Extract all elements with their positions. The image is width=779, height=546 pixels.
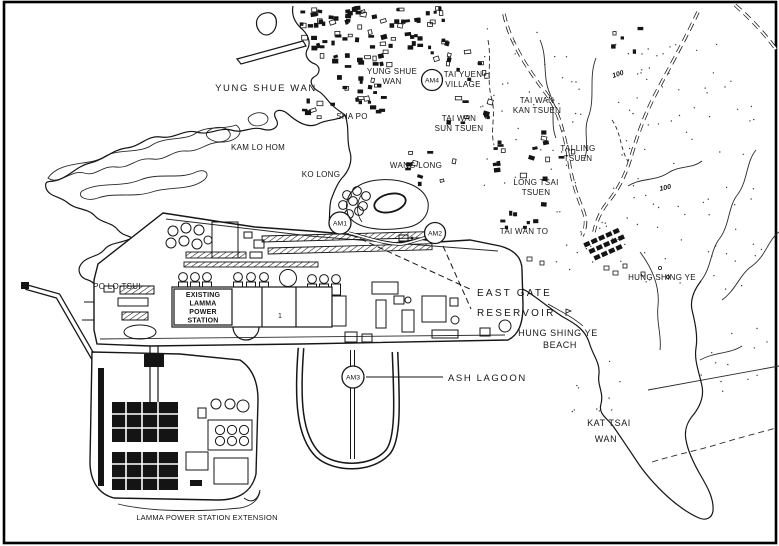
building: [427, 151, 433, 154]
building: [373, 56, 376, 61]
label-tai-yuen-village-2: VILLAGE: [445, 80, 480, 89]
terrain-dot: [722, 391, 723, 392]
terrain-dot: [575, 113, 576, 114]
terrain-dot: [605, 222, 606, 223]
terrain-dot: [566, 56, 567, 57]
station-am4-label: AM4: [425, 78, 439, 85]
building: [300, 11, 305, 14]
building: [331, 41, 334, 46]
terrain-dot: [558, 103, 559, 104]
terrain-dot: [580, 114, 581, 115]
building: [333, 54, 338, 58]
terrain-dot: [719, 151, 720, 152]
terrain-dot: [609, 361, 610, 362]
terrain-dot: [536, 32, 537, 33]
building: [381, 96, 387, 99]
terrain-dot: [675, 44, 676, 45]
building: [380, 42, 386, 46]
terrain-dot: [637, 73, 638, 74]
terrain-dot: [572, 411, 573, 412]
station-am3-label: AM3: [346, 375, 360, 382]
label-hung-shing-ye-beach-1: HUNG SHING YE: [518, 328, 598, 338]
terrain-dot: [486, 158, 487, 159]
building: [390, 23, 395, 28]
label-kam-lo-hom: KAM LO HOM: [231, 143, 285, 152]
label-hung-shing-ye-beach-2: BEACH: [543, 340, 577, 350]
label-existing-station-4: STATION: [187, 318, 218, 325]
building: [328, 15, 333, 19]
building: [621, 36, 624, 39]
building: [389, 44, 393, 48]
label-yung-shue-wan-bay: YUNG SHUE WAN: [215, 83, 317, 94]
terrain-dot: [711, 352, 712, 353]
terrain-dot: [513, 41, 514, 42]
terrain-dot: [501, 110, 502, 111]
station-am4: AM4: [422, 70, 443, 91]
building: [354, 6, 360, 11]
terrain-dot: [747, 379, 748, 380]
building: [368, 101, 371, 104]
terrain-dot: [544, 64, 545, 65]
label-reservoir: RESERVOIR: [477, 308, 556, 319]
terrain-dot: [709, 214, 710, 215]
terrain-dot: [691, 139, 692, 140]
building: [532, 146, 538, 150]
label-tai-wan-sun-tsuen-2: SUN TSUEN: [435, 124, 484, 133]
station-am3: AM3: [342, 366, 364, 388]
building: [358, 25, 362, 29]
building: [408, 45, 414, 49]
building: [417, 174, 423, 179]
terrain-dot: [753, 119, 754, 120]
terrain-dot: [737, 109, 738, 110]
label-kat-tsai-wan-2: WAN: [595, 434, 617, 444]
terrain-dot: [648, 124, 649, 125]
terrain-dot: [656, 55, 657, 56]
terrain-dot: [753, 244, 754, 245]
terrain-dot: [515, 139, 516, 140]
building: [613, 32, 616, 35]
building: [452, 159, 456, 164]
map-canvas: AM1 AM2 AM3 AM4 YUNG SHUE WAN YUNG SHUE …: [0, 0, 779, 546]
building: [343, 86, 348, 89]
terrain-dot: [755, 255, 756, 256]
building: [541, 130, 546, 134]
building: [317, 9, 322, 13]
terrain-dot: [754, 347, 755, 348]
building: [438, 7, 441, 11]
building: [377, 84, 381, 88]
terrain-dot: [613, 188, 614, 189]
terrain-dot: [715, 362, 716, 363]
building: [311, 36, 317, 40]
building: [368, 85, 373, 90]
building: [372, 14, 378, 19]
building: [447, 53, 451, 57]
ash-lagoon: [299, 348, 396, 466]
building: [633, 49, 636, 53]
terrain-dot: [624, 244, 625, 245]
label-contour-100-a: 100: [611, 70, 624, 80]
terrain-dot: [705, 87, 706, 88]
building: [414, 34, 418, 37]
building: [383, 50, 388, 53]
terrain-dot: [678, 206, 679, 207]
building: [368, 35, 374, 38]
building: [315, 13, 318, 16]
terrain-dot: [552, 150, 553, 151]
terrain-dot: [562, 130, 563, 131]
terrain-dot: [766, 341, 767, 342]
station-am2-label: AM2: [428, 231, 442, 238]
building: [487, 99, 493, 105]
terrain-dot: [580, 231, 581, 232]
terrain-dot: [658, 207, 659, 208]
building: [434, 11, 437, 14]
building: [464, 50, 471, 54]
terrain-dot: [673, 163, 674, 164]
building: [638, 27, 644, 30]
terrain-dot: [556, 261, 557, 262]
terrain-dot: [617, 239, 618, 240]
building: [312, 8, 317, 12]
building: [373, 91, 377, 94]
building: [442, 39, 446, 43]
terrain-dot: [750, 198, 751, 199]
terrain-dot: [735, 229, 736, 230]
terrain-dot: [658, 123, 659, 124]
label-existing-station-3: POWER: [189, 309, 216, 316]
label-wang-long: WANG LONG: [390, 161, 442, 170]
terrain-dot: [709, 116, 710, 117]
terrain-dot: [569, 269, 570, 270]
terrain-dot: [679, 282, 680, 283]
building: [348, 34, 352, 37]
terrain-dot: [662, 86, 663, 87]
terrain-dot: [637, 178, 638, 179]
terrain-dot: [556, 211, 557, 212]
building: [405, 19, 410, 23]
terrain-stipple: [480, 28, 768, 412]
building: [494, 168, 501, 173]
building: [501, 149, 505, 153]
terrain-dot: [726, 253, 727, 254]
terrain-dot: [648, 48, 649, 49]
terrain-dot: [753, 188, 754, 189]
building: [447, 57, 452, 62]
building: [364, 96, 370, 101]
building: [409, 151, 413, 154]
terrain-dot: [641, 53, 642, 54]
building: [417, 44, 423, 47]
terrain-dot: [727, 364, 728, 365]
terrain-dot: [724, 86, 725, 87]
building: [302, 35, 308, 40]
station-am2: AM2: [425, 223, 446, 244]
terrain-dot: [645, 195, 646, 196]
label-tai-yuen-village-1: TAI YUEN: [444, 70, 483, 79]
terrain-dot: [734, 204, 735, 205]
label-tai-ling-tsuen-1: TAI LING: [560, 144, 595, 153]
terrain-dot: [529, 91, 530, 92]
label-sha-po: SHA PO: [336, 112, 368, 121]
building: [307, 99, 310, 104]
label-ko-long: KO LONG: [302, 170, 341, 179]
terrain-dot: [620, 261, 621, 262]
power-station-extension: [90, 346, 260, 511]
terrain-dot: [518, 128, 519, 129]
building: [418, 182, 422, 186]
building: [611, 44, 616, 48]
building: [433, 56, 439, 62]
building: [358, 90, 364, 94]
terrain-dot: [618, 102, 619, 103]
terrain-dot: [716, 44, 717, 45]
building: [446, 62, 449, 66]
terrain-dot: [743, 154, 744, 155]
label-unit-1: 1: [278, 313, 282, 320]
terrain-dot: [715, 245, 716, 246]
terrain-dot: [504, 182, 505, 183]
terrain-dot: [577, 252, 578, 253]
building: [543, 140, 549, 145]
building: [498, 141, 502, 145]
building: [317, 101, 323, 106]
terrain-dot: [713, 275, 714, 276]
terrain-dot: [726, 187, 727, 188]
station-am1: AM1: [329, 212, 351, 234]
building: [440, 179, 444, 182]
terrain-dot: [596, 408, 597, 409]
label-ash-lagoon: ASH LAGOON: [448, 373, 527, 384]
building: [500, 220, 505, 223]
contour-labels: 100 100: [611, 70, 671, 193]
terrain-dot: [592, 261, 593, 262]
building: [322, 22, 325, 26]
building: [355, 37, 359, 42]
terrain-dot: [612, 238, 613, 239]
building: [541, 202, 547, 207]
terrain-dot: [681, 239, 682, 240]
terrain-dot: [514, 53, 515, 54]
terrain-dot: [487, 28, 488, 29]
terrain-dot: [706, 92, 707, 93]
building: [417, 18, 421, 23]
building: [527, 221, 530, 224]
terrain-dot: [615, 44, 616, 45]
terrain-dot: [694, 107, 695, 108]
label-tai-wan-kan-tsuen-1: TAI WAN: [520, 96, 555, 105]
building: [365, 56, 371, 59]
building: [380, 18, 386, 23]
building: [410, 35, 414, 39]
terrain-dot: [679, 115, 680, 116]
label-east-gate: EAST GATE: [477, 288, 552, 299]
building: [370, 45, 375, 48]
terrain-dot: [611, 409, 612, 410]
building: [509, 211, 512, 216]
terrain-dot: [649, 67, 650, 68]
building: [320, 45, 325, 48]
terrain-dot: [637, 97, 638, 98]
label-po-lo-tsui: PO LO TSUI: [93, 282, 141, 291]
building: [513, 212, 517, 216]
terrain-dot: [484, 56, 485, 57]
terrain-dot: [646, 79, 647, 80]
building: [391, 38, 395, 41]
terrain-dot: [572, 121, 573, 122]
terrain-dot: [484, 185, 485, 186]
label-existing-station-1: EXISTING: [186, 292, 221, 299]
building: [533, 219, 538, 223]
terrain-dot: [540, 149, 541, 150]
label-yung-shue-wan-village-1: YUNG SHUE: [367, 67, 417, 76]
label-tai-wan-kan-tsuen-2: KAN TSUEN: [513, 106, 561, 115]
terrain-dot: [629, 148, 630, 149]
building: [322, 40, 327, 43]
terrain-dot: [633, 185, 634, 186]
building: [357, 58, 363, 63]
building: [439, 11, 443, 16]
terrain-dot: [590, 246, 591, 247]
terrain-dot: [632, 113, 633, 114]
terrain-dot: [621, 154, 622, 155]
terrain-dot: [575, 182, 576, 183]
station-am1-label: AM1: [333, 221, 347, 228]
terrain-dot: [493, 95, 494, 96]
terrain-dot: [633, 197, 634, 198]
building: [462, 100, 468, 103]
terrain-dot: [761, 249, 762, 250]
terrain-dot: [749, 120, 750, 121]
building: [442, 19, 445, 22]
terrain-dot: [735, 260, 736, 261]
terrain-dot: [566, 245, 567, 246]
building: [484, 73, 489, 78]
road-dashed-east: [594, 12, 698, 232]
building: [431, 51, 434, 54]
terrain-dot: [482, 106, 483, 107]
terrain-dot: [756, 328, 757, 329]
terrain-dot: [644, 252, 645, 253]
label-existing-station-2: LAMMA: [189, 301, 216, 308]
terrain-dot: [668, 73, 669, 74]
building: [546, 157, 550, 162]
terrain-dot: [701, 374, 702, 375]
building: [317, 116, 321, 119]
terrain-dot: [628, 53, 629, 54]
terrain-dot: [551, 169, 552, 170]
terrain-dot: [657, 227, 658, 228]
terrain-dot: [678, 89, 679, 90]
building: [379, 109, 385, 112]
terrain-dot: [640, 72, 641, 73]
label-long-tsai-tsuen-1: LONG TSAI: [513, 178, 558, 187]
terrain-dot: [606, 226, 607, 227]
terrain-dot: [637, 224, 638, 225]
terrain-dot: [686, 132, 687, 133]
road-dashed-corner: [735, 5, 776, 49]
terrain-dot: [730, 81, 731, 82]
terrain-dot: [684, 214, 685, 215]
terrain-dot: [575, 81, 576, 82]
terrain-dot: [720, 381, 721, 382]
building: [380, 34, 387, 40]
label-kat-tsai-wan-1: KAT TSAI: [587, 418, 631, 428]
terrain-dot: [751, 106, 752, 107]
building: [332, 59, 338, 64]
building: [345, 65, 352, 68]
terrain-dot: [708, 251, 709, 252]
building: [375, 84, 378, 87]
label-hung-shing-ye: HUNG SHING YE: [628, 273, 696, 282]
building: [330, 103, 335, 106]
building: [368, 30, 372, 35]
building: [320, 54, 324, 59]
building: [455, 97, 461, 100]
terrain-dot: [626, 140, 627, 141]
terrain-dot: [708, 199, 709, 200]
building: [308, 24, 313, 28]
label-extension: LAMMA POWER STATION EXTENSION: [136, 513, 277, 522]
terrain-dot: [578, 387, 579, 388]
building: [370, 105, 376, 109]
building: [528, 155, 535, 161]
building: [541, 136, 547, 141]
terrain-dot: [608, 397, 609, 398]
terrain-dot: [725, 288, 726, 289]
building: [418, 36, 423, 40]
terrain-dot: [480, 106, 481, 107]
building: [379, 61, 384, 66]
terrain-dot: [665, 258, 666, 259]
building: [345, 14, 351, 19]
terrain-dot: [629, 110, 630, 111]
terrain-dot: [644, 149, 645, 150]
terrain-dot: [703, 202, 704, 203]
terrain-dot: [507, 82, 508, 83]
terrain-dot: [627, 217, 628, 218]
map-page: AM1 AM2 AM3 AM4 YUNG SHUE WAN YUNG SHUE …: [0, 0, 779, 546]
terrain-dot: [578, 89, 579, 90]
terrain-dot: [713, 72, 714, 73]
building: [314, 23, 319, 28]
terrain-dot: [599, 228, 600, 229]
building: [359, 100, 362, 104]
terrain-dot: [641, 69, 642, 70]
building: [412, 41, 416, 46]
terrain-dot: [619, 381, 620, 382]
hung-shing-ye-village: [583, 227, 628, 262]
building: [498, 144, 504, 147]
building: [373, 62, 379, 66]
building: [311, 46, 317, 51]
terrain-dot: [696, 50, 697, 51]
label-tai-wan-sun-tsuen-1: TAI WAN: [442, 114, 477, 123]
terrain-dot: [562, 77, 563, 78]
building: [494, 147, 498, 150]
building: [405, 32, 412, 36]
building: [358, 76, 363, 80]
building: [337, 75, 342, 80]
terrain-dot: [559, 211, 560, 212]
label-tai-wan-to: TAI WAN TO: [500, 227, 548, 236]
building: [305, 110, 311, 115]
building: [378, 53, 384, 59]
terrain-dot: [671, 120, 672, 121]
building: [345, 53, 350, 58]
building: [493, 163, 497, 167]
